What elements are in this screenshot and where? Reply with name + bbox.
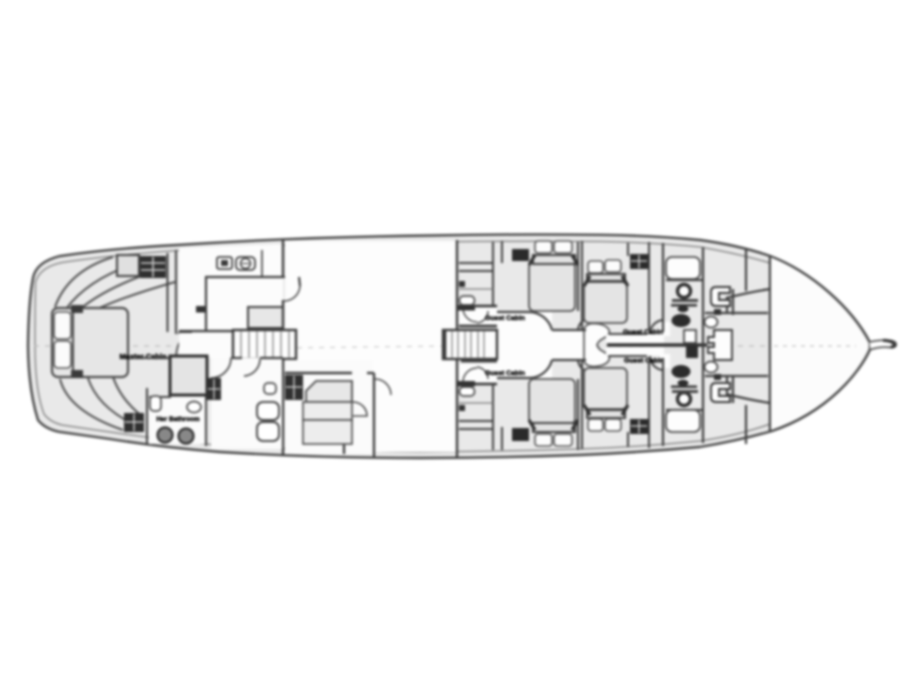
svg-text:Guest Cabin: Guest Cabin xyxy=(623,329,663,336)
svg-text:Guest Cabin: Guest Cabin xyxy=(485,370,525,377)
svg-text:Guest Cabin: Guest Cabin xyxy=(624,358,664,365)
svg-text:Her Bathroom: Her Bathroom xyxy=(156,416,200,423)
svg-text:Master Cabin: Master Cabin xyxy=(119,352,167,361)
svg-text:Guest Cabin: Guest Cabin xyxy=(485,315,525,322)
